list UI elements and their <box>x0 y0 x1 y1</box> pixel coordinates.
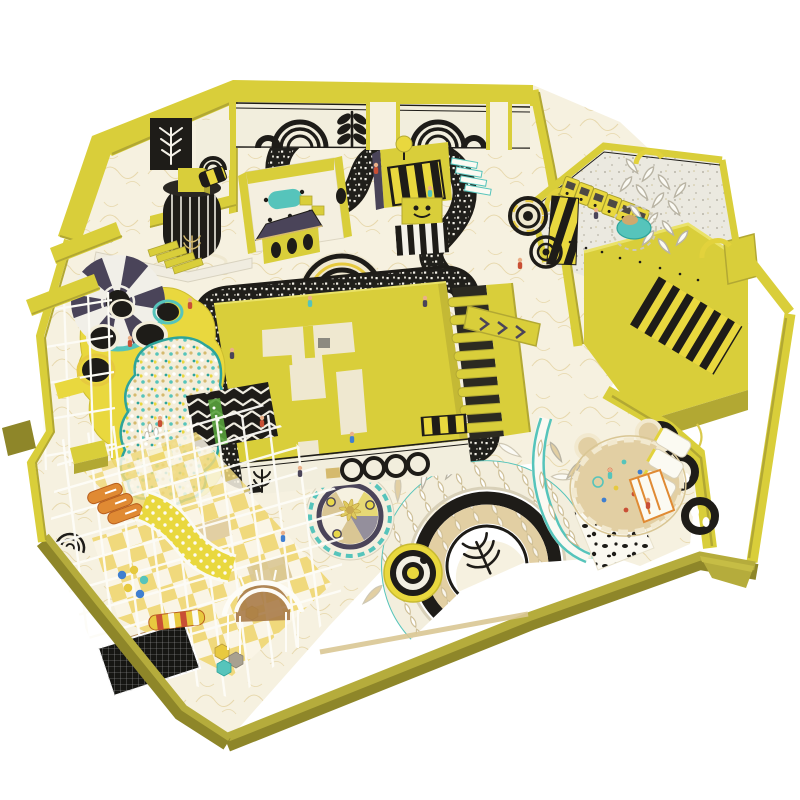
hazard-awning <box>421 414 466 435</box>
tree-mural-panel <box>150 118 230 170</box>
spiral-slide-bowl <box>384 544 442 602</box>
playground-render <box>0 0 800 800</box>
smiley-box <box>402 198 442 224</box>
doorway-gap <box>366 102 400 150</box>
maze-courtyard <box>336 369 367 435</box>
wheat-mural <box>337 112 367 146</box>
top-wall <box>233 80 533 150</box>
